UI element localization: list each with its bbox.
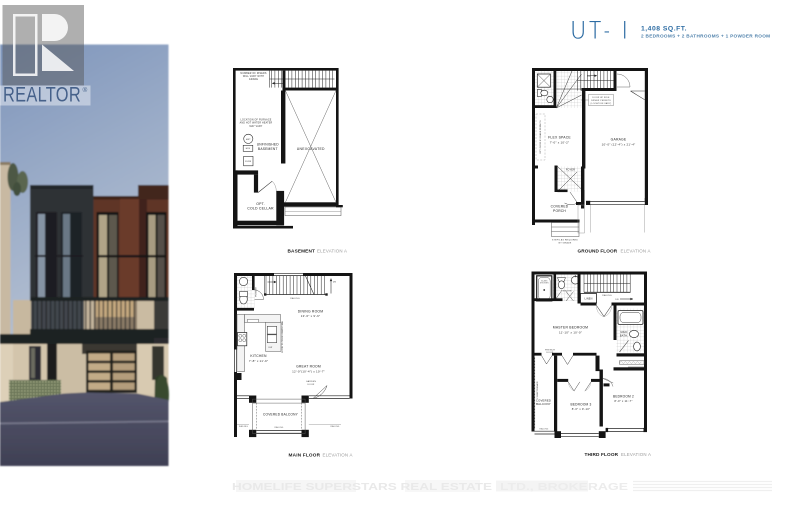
- svg-text:KITCHEN: KITCHEN: [250, 354, 267, 358]
- svg-text:DN: DN: [333, 282, 337, 284]
- svg-text:BASEMENT: BASEMENT: [258, 147, 278, 151]
- svg-text:BEDROOM 2: BEDROOM 2: [613, 394, 634, 398]
- svg-text:UP: UP: [587, 76, 591, 78]
- svg-text:®: ®: [83, 86, 88, 94]
- svg-text:DOOR: DOOR: [546, 352, 553, 354]
- svg-text:7′-0″ x 10′-2″: 7′-0″ x 10′-2″: [550, 140, 570, 144]
- svg-text:10′-0″ (12′-4″) x 21′-4″: 10′-0″ (12′-4″) x 21′-4″: [602, 143, 636, 147]
- svg-text:ELEVATION A: ELEVATION A: [621, 452, 651, 457]
- svg-text:DRNER PERMITS: DRNER PERMITS: [591, 100, 611, 102]
- svg-text:MAIN FLOOR: MAIN FLOOR: [289, 452, 321, 457]
- svg-text:RAILING: RAILING: [602, 294, 612, 297]
- svg-text:HRV: HRV: [246, 148, 251, 150]
- svg-text:GREAT ROOM: GREAT ROOM: [296, 364, 321, 368]
- svg-text:ELEVATION A: ELEVATION A: [317, 248, 347, 253]
- svg-text:DINING ROOM: DINING ROOM: [298, 309, 324, 313]
- svg-text:6′ DEEP TERRACE: 6′ DEEP TERRACE: [536, 381, 539, 399]
- svg-text:1,408 SQ.FT.: 1,408 SQ.FT.: [641, 25, 687, 32]
- svg-text:STEPS AS REQUIRED: STEPS AS REQUIRED: [552, 239, 578, 242]
- svg-text:13′-6″ x 9′-6″: 13′-6″ x 9′-6″: [301, 314, 321, 318]
- svg-text:NUMBER OF RISERS: NUMBER OF RISERS: [240, 73, 266, 75]
- svg-text:BATH.: BATH.: [620, 335, 628, 338]
- svg-text:BALCONY: BALCONY: [536, 402, 551, 406]
- svg-text:OPT. DOOR IF GRADE PERMITS: OPT. DOOR IF GRADE PERMITS: [539, 120, 542, 154]
- svg-text:PORCH: PORCH: [553, 209, 566, 213]
- svg-text:DOOR: DOOR: [307, 384, 314, 386]
- svg-text:RAILING: RAILING: [290, 297, 300, 300]
- svg-text:POWDER: POWDER: [255, 287, 257, 297]
- svg-text:UNEXCAVATED: UNEXCAVATED: [297, 147, 325, 151]
- svg-text:MASTER BEDROOM: MASTER BEDROOM: [553, 325, 588, 329]
- svg-text:RAILING: RAILING: [540, 428, 549, 431]
- svg-text:(LOCATION VARY): (LOCATION VARY): [591, 102, 612, 105]
- svg-text:GRADE: GRADE: [249, 78, 258, 81]
- svg-text:GROUND FLOOR: GROUND FLOOR: [578, 248, 618, 253]
- svg-text:FURN: FURN: [245, 161, 251, 163]
- svg-text:COVERED BALCONY: COVERED BALCONY: [263, 412, 299, 416]
- svg-text:FRENCH: FRENCH: [545, 349, 555, 351]
- svg-text:LOCATION OF FURNACE: LOCATION OF FURNACE: [241, 119, 272, 122]
- svg-text:THIRD FLOOR: THIRD FLOOR: [585, 452, 619, 457]
- svg-text:BEDROOM 3: BEDROOM 3: [571, 402, 592, 406]
- svg-text:SHOWER: SHOWER: [540, 283, 549, 285]
- svg-text:FLOOR TO CEILING PANTRY BAR: FLOOR TO CEILING PANTRY BAR: [281, 321, 284, 353]
- svg-text:8′-0″ x 9′-10″: 8′-0″ x 9′-10″: [572, 407, 590, 411]
- svg-text:RAILING: RAILING: [331, 425, 340, 428]
- svg-text:DN: DN: [615, 299, 619, 301]
- svg-text:COVERED: COVERED: [551, 204, 569, 208]
- svg-text:REALTOR: REALTOR: [3, 84, 81, 107]
- svg-text:HWT: HWT: [246, 139, 252, 141]
- svg-text:MAY VARY: MAY VARY: [249, 125, 262, 128]
- svg-text:RAILING: RAILING: [239, 425, 248, 428]
- svg-text:LINEN: LINEN: [584, 298, 592, 301]
- svg-text:HOMELIFE SUPERSTARS REAL ESTAT: HOMELIFE SUPERSTARS REAL ESTATE: [232, 481, 492, 493]
- svg-text:8′-0″ x 11′-7″: 8′-0″ x 11′-7″: [614, 399, 632, 403]
- svg-text:FLEX SPACE: FLEX SPACE: [548, 136, 571, 140]
- svg-text:11′-10″ x 10′-0″: 11′-10″ x 10′-0″: [559, 330, 582, 334]
- svg-text:GARDEN: GARDEN: [306, 380, 316, 383]
- svg-text:2 BEDROOMS + 2 BATHROOMS + 1 P: 2 BEDROOMS + 2 BATHROOMS + 1 POWDER ROOM: [641, 33, 770, 38]
- svg-text:ELEVATION A: ELEVATION A: [323, 452, 353, 457]
- svg-text:OPT.: OPT.: [256, 202, 265, 206]
- svg-text:BASEMENT: BASEMENT: [288, 248, 316, 253]
- svg-text:ELEVATION A: ELEVATION A: [621, 248, 651, 253]
- svg-text:BY GRADE: BY GRADE: [559, 242, 572, 245]
- svg-text:LTD., BROKERAGE: LTD., BROKERAGE: [500, 481, 628, 493]
- svg-text:UNFINISHED: UNFINISHED: [257, 142, 280, 146]
- svg-text:FOYER: FOYER: [566, 168, 575, 171]
- svg-text:WILL VARY WITH: WILL VARY WITH: [243, 75, 264, 78]
- svg-text:DW: DW: [269, 347, 273, 349]
- svg-text:RAILING: RAILING: [275, 426, 284, 429]
- svg-text:GARAGE: GARAGE: [611, 138, 627, 142]
- svg-text:COLD CELLAR: COLD CELLAR: [247, 207, 274, 211]
- svg-text:7′-8″ x 11′-9″: 7′-8″ x 11′-9″: [249, 359, 268, 363]
- svg-text:UT- I: UT- I: [571, 15, 631, 45]
- svg-text:AND HOT WATER HEATER: AND HOT WATER HEATER: [240, 122, 273, 125]
- svg-text:DOOR W/ SIDE: DOOR W/ SIDE: [592, 97, 610, 99]
- svg-text:12′-0″(10′-4″) x 10′-7″: 12′-0″(10′-4″) x 10′-7″: [292, 369, 325, 373]
